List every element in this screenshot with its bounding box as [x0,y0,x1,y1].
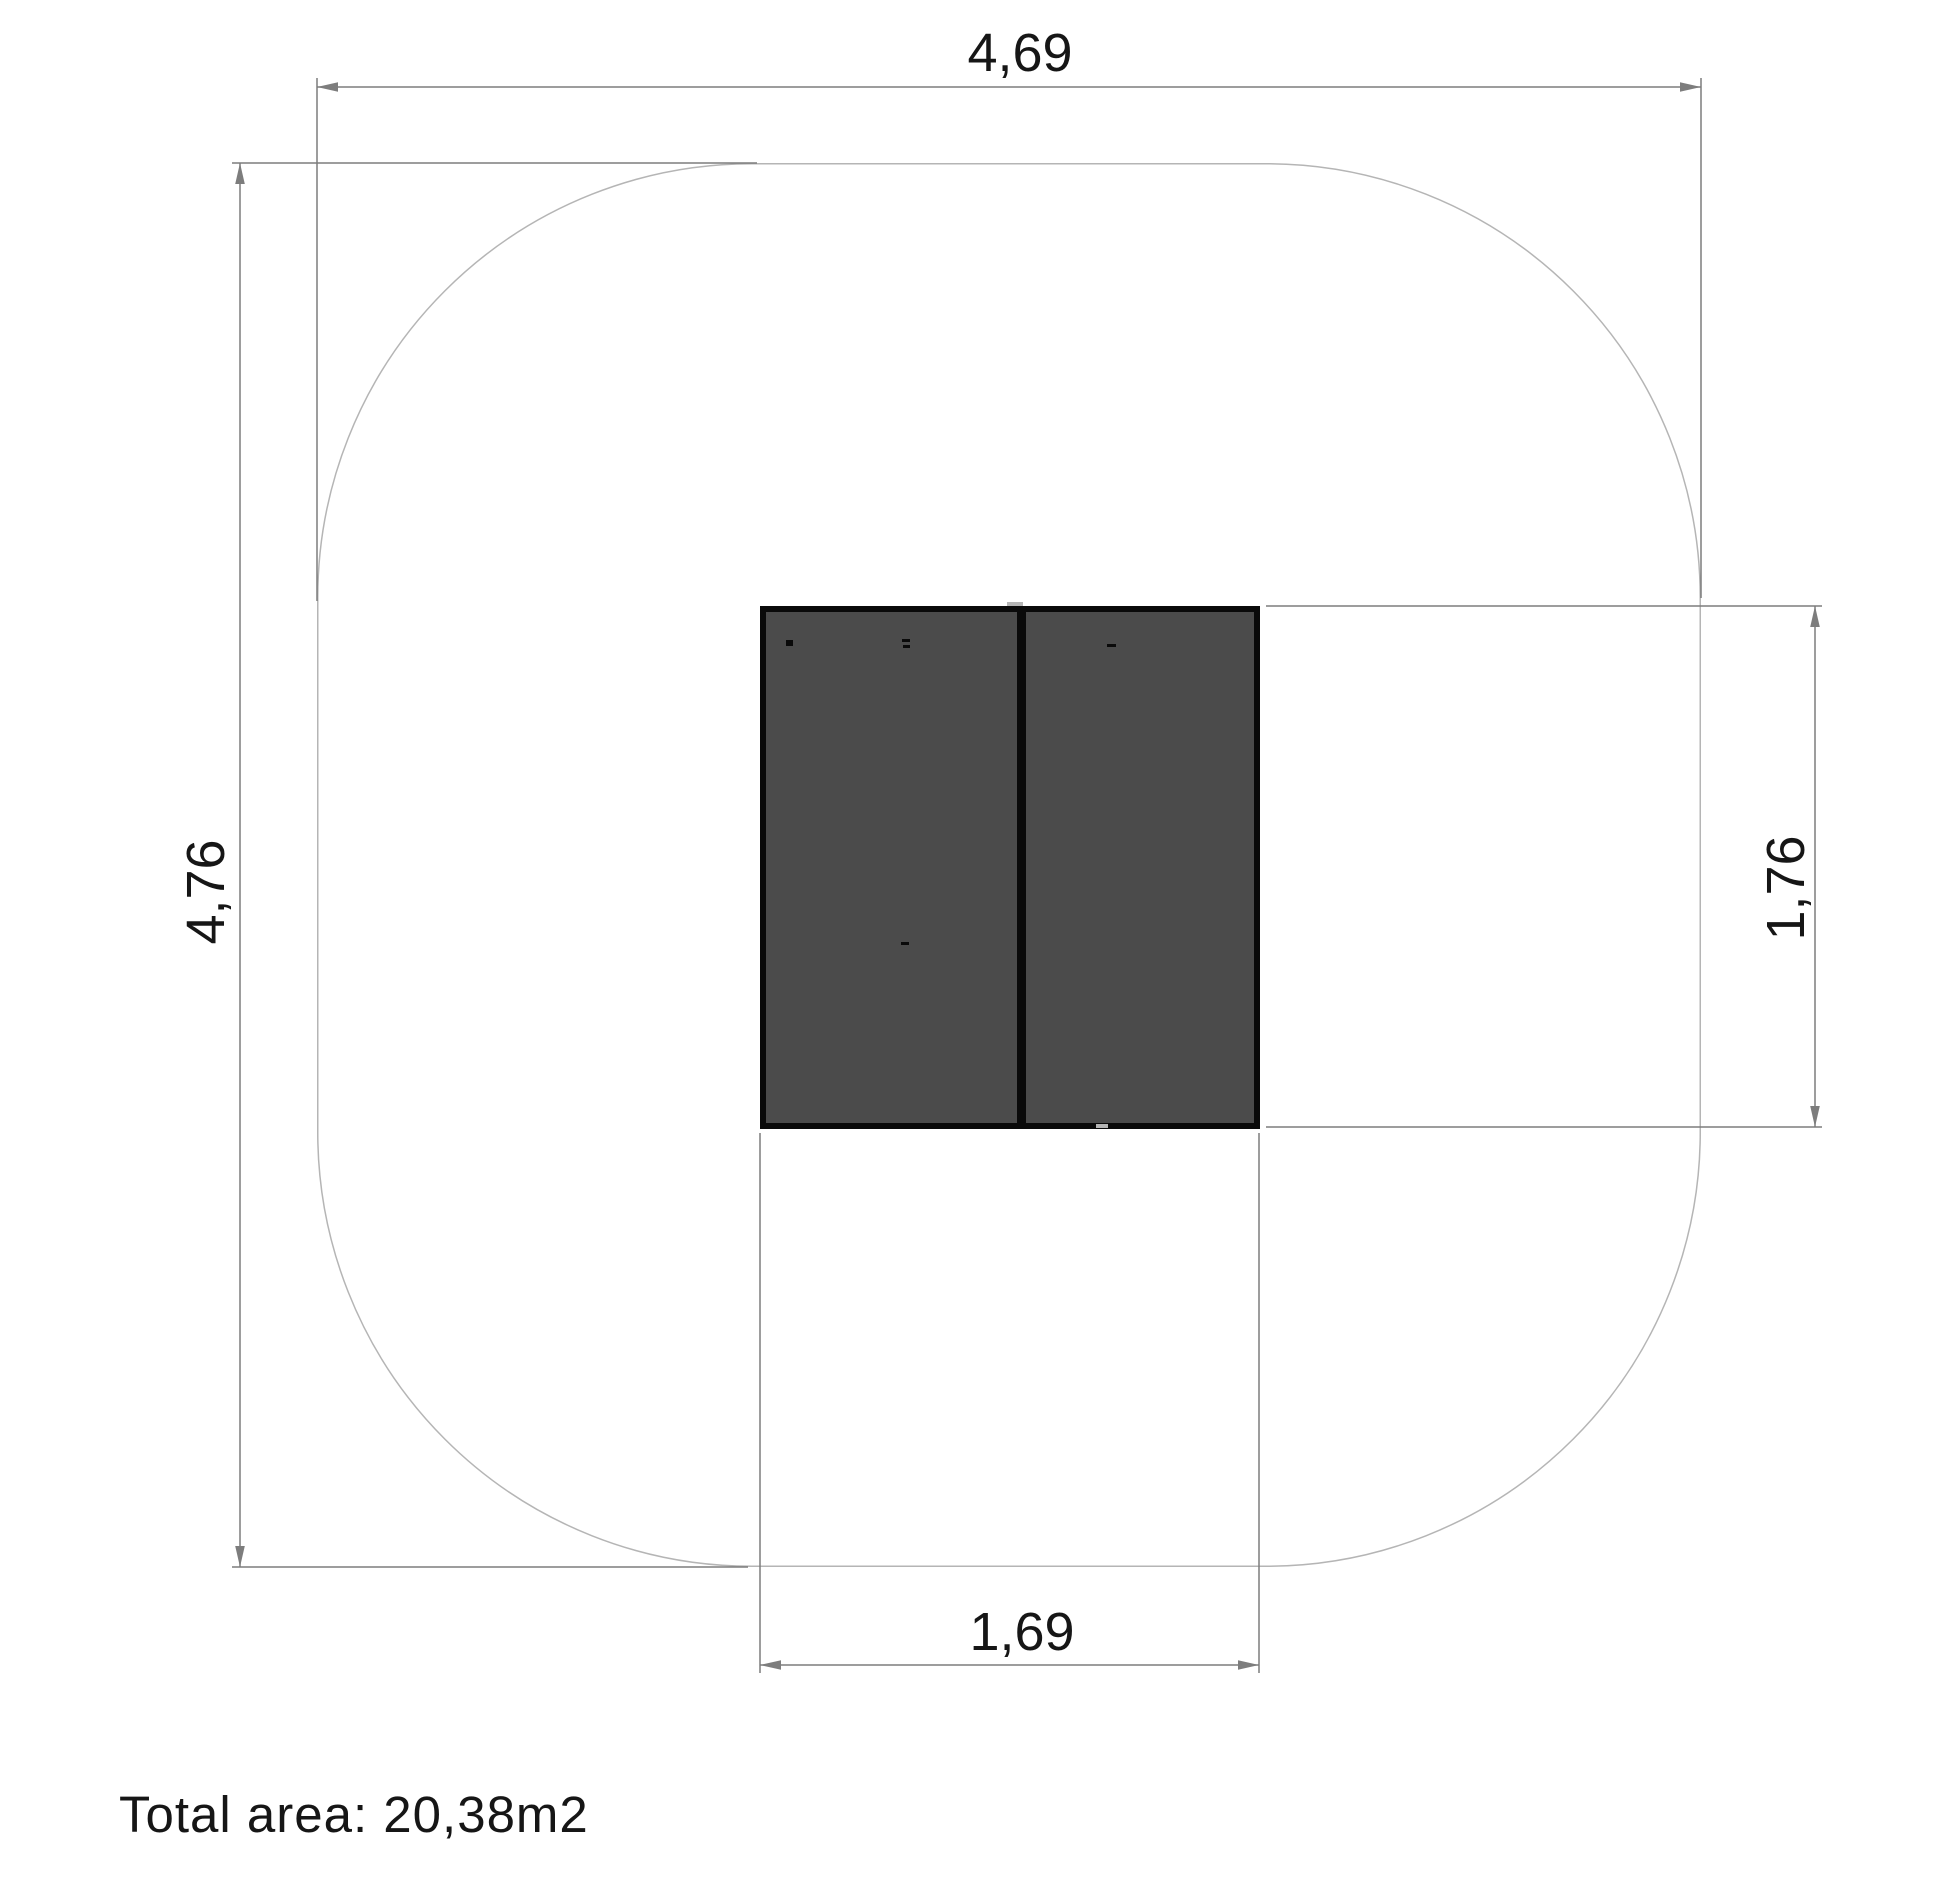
dim-label-unit-width: 1,69 [969,1605,1074,1659]
dim-overall-width [317,78,1701,601]
technical-drawing-canvas: 4,69 4,76 1,76 1,69 Total area: 20,38m2 [0,0,1953,1880]
equipment-detail-mark [786,640,793,646]
arrowhead-right [1238,1660,1259,1670]
arrowhead-bottom [235,1546,245,1567]
dim-label-unit-height: 1,76 [1759,835,1813,940]
equipment-body [763,609,1257,1126]
arrowhead-top [1810,606,1820,627]
arrowhead-bottom [1810,1106,1820,1127]
total-area-label: Total area: 20,38m2 [119,1789,589,1840]
dim-label-overall-height: 4,76 [179,839,233,944]
equipment-detail-mark [902,639,910,642]
equipment-detail-mark [903,645,910,648]
dim-unit-height [1266,606,1822,1127]
arrowhead-top [235,163,245,184]
drawing-svg [0,0,1953,1880]
arrowhead-right [1680,82,1701,92]
arrowhead-left [317,82,338,92]
dim-unit-width [760,1133,1259,1673]
dim-label-overall-width: 4,69 [967,26,1072,80]
equipment-top-view [763,602,1257,1129]
equipment-detail-tick-top [1007,602,1023,606]
equipment-detail-tick-bottom [1096,1124,1108,1128]
equipment-center-divider [1017,606,1026,1129]
dim-overall-height [232,163,757,1567]
equipment-detail-mark [901,942,909,945]
equipment-detail-mark [1107,644,1116,647]
arrowhead-left [760,1660,781,1670]
